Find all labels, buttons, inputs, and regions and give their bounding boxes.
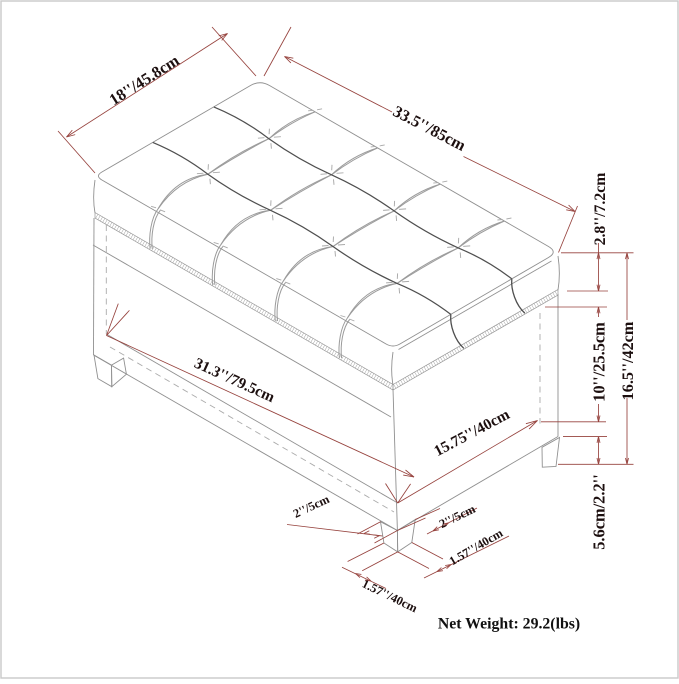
svg-text:16.5''/42cm: 16.5''/42cm (619, 321, 637, 400)
svg-text:2.8''/7.2cm: 2.8''/7.2cm (592, 173, 609, 246)
svg-text:5.6cm/2.2'': 5.6cm/2.2'' (590, 474, 609, 550)
svg-text:10''/25.5cm: 10''/25.5cm (590, 322, 609, 402)
svg-text:Net Weight: 29.2(lbs): Net Weight: 29.2(lbs) (438, 616, 580, 633)
